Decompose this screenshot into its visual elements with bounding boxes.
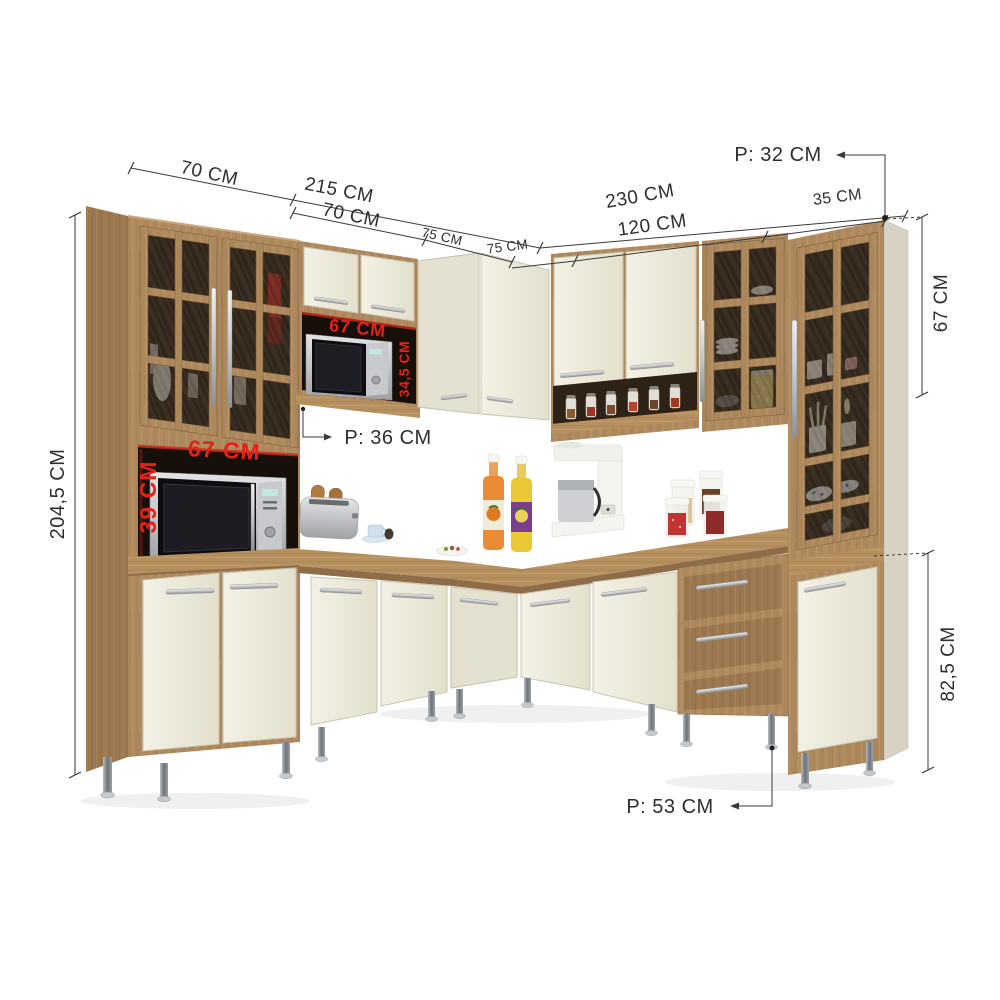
- door-handle: [700, 320, 705, 402]
- niche-label-upper-height: 34,5 CM: [396, 341, 412, 397]
- drawer-unit: [678, 554, 788, 716]
- right-tall-glass-door: [797, 232, 877, 550]
- door-handle: [212, 288, 217, 406]
- dim-label-mid-depth: P: 36 CM: [344, 427, 431, 449]
- right-base-door: [798, 567, 877, 752]
- niche-label-lower-width: 67 CM: [187, 435, 261, 465]
- corner-upper-door-2: [481, 253, 549, 420]
- base-run: [298, 528, 788, 762]
- juice-bottle-orange: [483, 454, 504, 550]
- left-glass-door-2: [222, 238, 298, 448]
- niche-label-lower-height: 39 CM: [135, 461, 161, 534]
- door-handle: [792, 320, 797, 438]
- juice-bottle-yellow: [511, 456, 532, 552]
- door-handle: [228, 290, 233, 408]
- left-base-door-2: [223, 568, 296, 743]
- toaster-lever: [352, 513, 358, 518]
- counter-appliances: [299, 442, 727, 556]
- dim-label-right-wall-width: 230 CM: [604, 180, 676, 213]
- diagram-canvas: 70 CM 215 CM 70 CM 75 CM 75 CM 230 CM 12…: [0, 0, 1000, 1000]
- mid-upper-door-2: [361, 255, 414, 321]
- right-glass-wall-cabinet: [700, 233, 788, 432]
- lower-microwave: [150, 472, 286, 562]
- right-glass-door: [706, 238, 784, 421]
- base-door-corner-2: [521, 584, 590, 690]
- mid-upper-door-1: [304, 247, 358, 313]
- microwave-display: [262, 489, 278, 496]
- dim-label-corner-right-width: 75 CM: [486, 237, 529, 257]
- toaster: [299, 484, 360, 539]
- corner-upper-door-1: [418, 253, 479, 414]
- dim-label-left-wall-depth: 70 CM: [178, 157, 240, 190]
- storage-jars: [665, 471, 727, 537]
- right-upper-door-1: [554, 252, 623, 389]
- dim-label-total-height: 204,5 CM: [47, 449, 69, 540]
- cup-and-saucer: [362, 525, 394, 543]
- dim-label-left-cabinet-width: 70 CM: [320, 199, 382, 232]
- dim-label-base-height: 82,5 CM: [938, 626, 959, 701]
- kitchen-dimension-diagram: 70 CM 215 CM 70 CM 75 CM 75 CM 230 CM 12…: [0, 0, 1000, 1000]
- upper-microwave: [306, 334, 392, 400]
- dim-label-mid-cabinet-width: 75 CM: [420, 225, 464, 249]
- right-tall-cabinet: [788, 220, 908, 789]
- dim-label-upper-right-height: 67 CM: [931, 274, 952, 332]
- microwave-knob: [265, 527, 275, 537]
- dark-item: [385, 529, 394, 540]
- left-glass-door-1: [140, 226, 217, 436]
- left-base-door-1: [143, 573, 219, 751]
- corner-upper-cabinet: [418, 253, 549, 420]
- base-door-left-2: [381, 581, 447, 706]
- right-upper-door-2: [626, 246, 696, 381]
- left-cabinet-side-panel: [86, 206, 128, 772]
- dim-label-top-depth: P: 32 CM: [734, 144, 821, 166]
- dim-label-base-depth: P: 53 CM: [626, 796, 713, 818]
- base-door-left-1: [311, 577, 377, 725]
- snack-plate: [436, 546, 468, 556]
- right-upper-cabinet: [551, 241, 699, 442]
- lower-microwave-niche: [138, 446, 298, 566]
- dim-label-end-cabinet-width: 35 CM: [812, 186, 863, 209]
- coffee-maker: [552, 442, 624, 538]
- left-tall-cabinet: [86, 206, 300, 802]
- right-cabinet-side-panel: [884, 220, 908, 760]
- microwave-display: [369, 349, 382, 355]
